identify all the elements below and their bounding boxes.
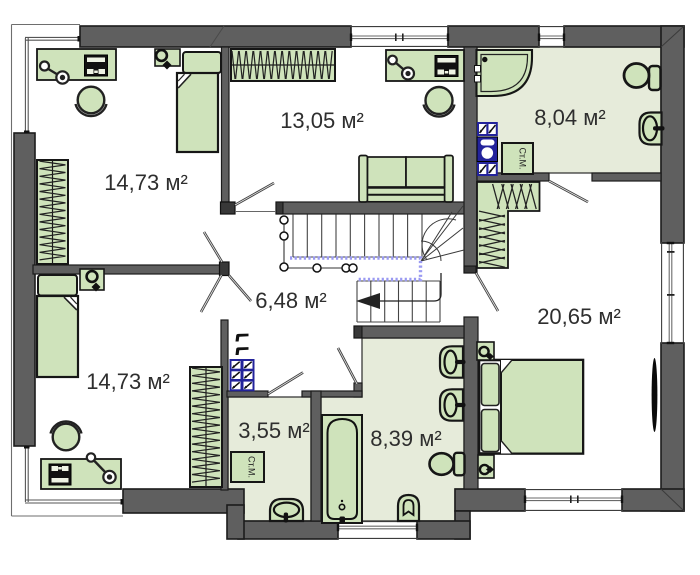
svg-text:Ст.М.: Ст.М. — [247, 456, 257, 478]
svg-text:20,65 м²: 20,65 м² — [537, 304, 621, 329]
svg-text:6,48 м²: 6,48 м² — [255, 288, 326, 313]
svg-text:14,73 м²: 14,73 м² — [86, 369, 170, 394]
svg-text:3,55 м²: 3,55 м² — [238, 418, 309, 443]
svg-text:14,73 м²: 14,73 м² — [104, 170, 188, 195]
svg-text:13,05 м²: 13,05 м² — [280, 108, 364, 133]
svg-text:Ст.М.: Ст.М. — [518, 147, 528, 169]
svg-text:8,39 м²: 8,39 м² — [370, 426, 441, 451]
svg-text:8,04 м²: 8,04 м² — [534, 105, 605, 130]
